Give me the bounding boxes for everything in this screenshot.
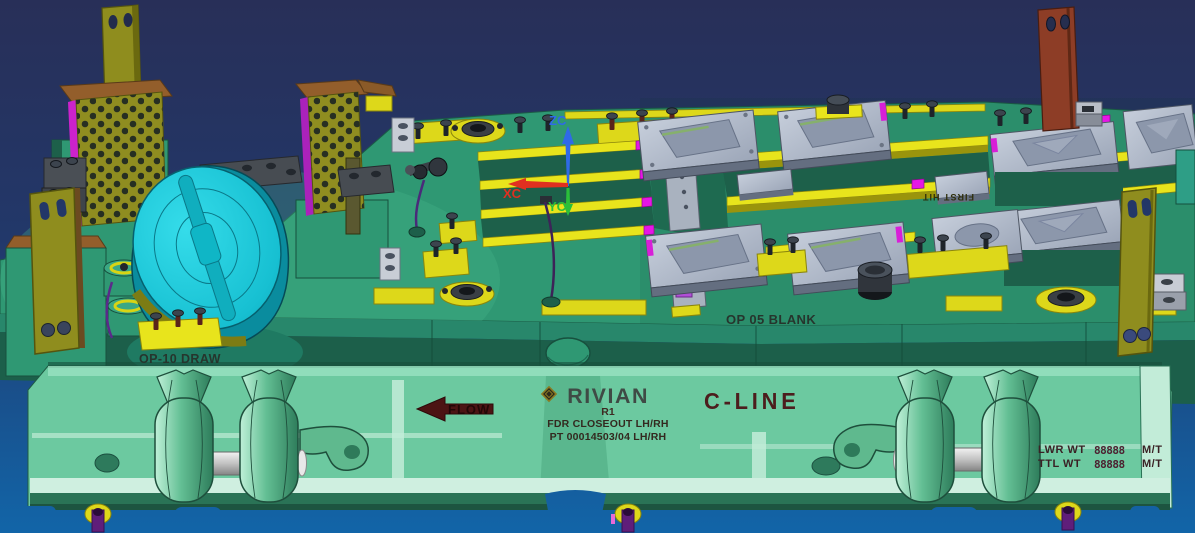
weight-row-total: TTL WT 88888 M/T: [1038, 458, 1162, 472]
weight-table: LWR WT 88888 M/T TTL WT 88888 M/T: [1038, 444, 1162, 471]
roller: [982, 370, 1040, 502]
roller: [155, 370, 213, 502]
flow-label: FLOW: [448, 402, 490, 417]
roller: [240, 370, 298, 502]
triad-z-label: ZC: [549, 113, 566, 128]
weight-row-lower: LWR WT 88888 M/T: [1038, 444, 1162, 458]
weight-value: 88888: [1094, 444, 1142, 458]
weight-value: 88888: [1094, 458, 1142, 472]
triad-y-label: YC: [548, 199, 566, 214]
cad-viewport[interactable]: OP-10 DRAW OP 05 BLANK FIRST HIT FLOW RI…: [0, 0, 1195, 533]
brand-name: RIVIAN: [567, 385, 649, 409]
weight-label: TTL WT: [1038, 458, 1094, 472]
rivian-diamond-icon: [540, 385, 558, 403]
die-model-render: [0, 0, 1195, 533]
triad-x-label: XC: [503, 186, 521, 201]
roller: [896, 370, 954, 502]
lifter-bracket-right: [1118, 188, 1156, 356]
weight-label: LWR WT: [1038, 444, 1094, 458]
weight-unit: M/T: [1142, 444, 1162, 458]
part-number: PT 00014503/04 LH/RH: [550, 431, 667, 444]
weight-unit: M/T: [1142, 458, 1162, 472]
die-nameplate: RIVIAN R1 FDR CLOSEOUT LH/RH PT 00014503…: [540, 385, 676, 443]
part-title: FDR CLOSEOUT LH/RH: [547, 418, 668, 431]
